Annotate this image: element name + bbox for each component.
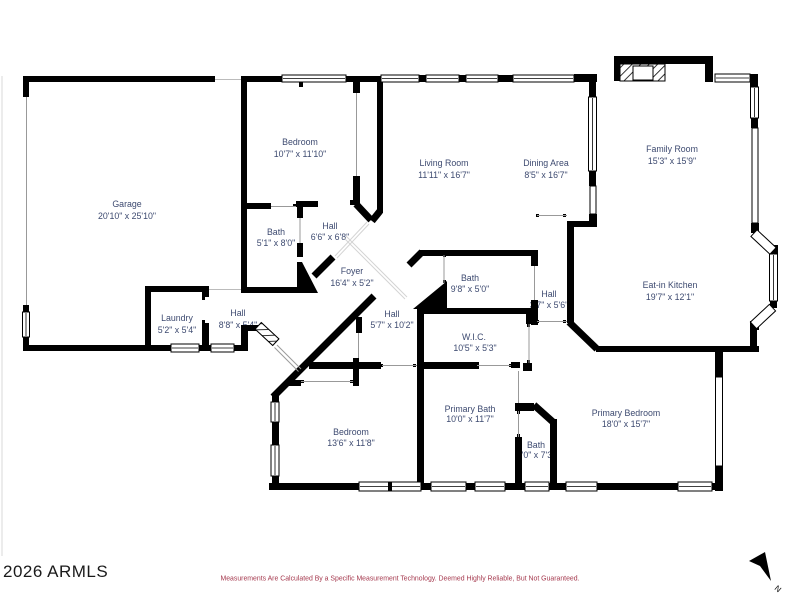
svg-text:7'0" x 7'3": 7'0" x 7'3" <box>517 450 555 460</box>
svg-text:Bedroom: Bedroom <box>333 427 369 437</box>
svg-text:13'6" x 11'8": 13'6" x 11'8" <box>327 438 375 448</box>
svg-text:19'7" x 12'1": 19'7" x 12'1" <box>646 292 694 302</box>
svg-text:Foyer: Foyer <box>341 266 364 276</box>
svg-text:Bath: Bath <box>527 440 545 450</box>
svg-text:5'7" x 10'2": 5'7" x 10'2" <box>370 320 413 330</box>
svg-text:Primary Bedroom: Primary Bedroom <box>592 408 660 418</box>
svg-text:5'2" x 5'4": 5'2" x 5'4" <box>158 325 196 335</box>
svg-text:6'6" x 6'8": 6'6" x 6'8" <box>311 232 349 242</box>
svg-text:Primary Bath: Primary Bath <box>445 404 496 414</box>
svg-text:Living Room: Living Room <box>420 158 469 168</box>
svg-text:10'7" x 11'10": 10'7" x 11'10" <box>274 149 327 159</box>
svg-text:Dining Area: Dining Area <box>523 158 569 168</box>
svg-text:Hall: Hall <box>384 309 399 319</box>
svg-text:Garage: Garage <box>112 199 141 209</box>
svg-text:9'8" x 5'0": 9'8" x 5'0" <box>451 284 489 294</box>
svg-text:2026 ARMLS: 2026 ARMLS <box>3 562 108 581</box>
svg-text:Hall: Hall <box>322 221 337 231</box>
svg-text:Laundry: Laundry <box>161 313 193 323</box>
svg-text:5'1" x 8'0": 5'1" x 8'0" <box>257 238 295 248</box>
svg-text:16'4" x 5'2": 16'4" x 5'2" <box>330 278 373 288</box>
svg-text:Measurements Are Calculated By: Measurements Are Calculated By a Specifi… <box>220 576 579 583</box>
svg-text:W.I.C.: W.I.C. <box>462 332 486 342</box>
svg-text:Bath: Bath <box>267 227 285 237</box>
svg-text:Bath: Bath <box>461 273 479 283</box>
svg-text:20'10" x 25'10": 20'10" x 25'10" <box>98 211 156 221</box>
svg-text:11'11" x 16'7": 11'11" x 16'7" <box>418 170 470 180</box>
svg-text:Hall: Hall <box>541 289 556 299</box>
svg-text:10'0" x 11'7": 10'0" x 11'7" <box>446 414 494 424</box>
svg-text:Eat-in Kitchen: Eat-in Kitchen <box>643 280 698 290</box>
svg-text:Bedroom: Bedroom <box>282 137 318 147</box>
svg-text:8'5" x 16'7": 8'5" x 16'7" <box>524 170 567 180</box>
svg-text:Family Room: Family Room <box>646 144 698 154</box>
svg-text:N: N <box>773 584 783 595</box>
svg-text:Hall: Hall <box>230 308 245 318</box>
svg-text:15'3" x 15'9": 15'3" x 15'9" <box>648 156 696 166</box>
svg-text:10'5" x 5'3": 10'5" x 5'3" <box>453 343 496 353</box>
svg-text:18'0" x 15'7": 18'0" x 15'7" <box>602 419 650 429</box>
